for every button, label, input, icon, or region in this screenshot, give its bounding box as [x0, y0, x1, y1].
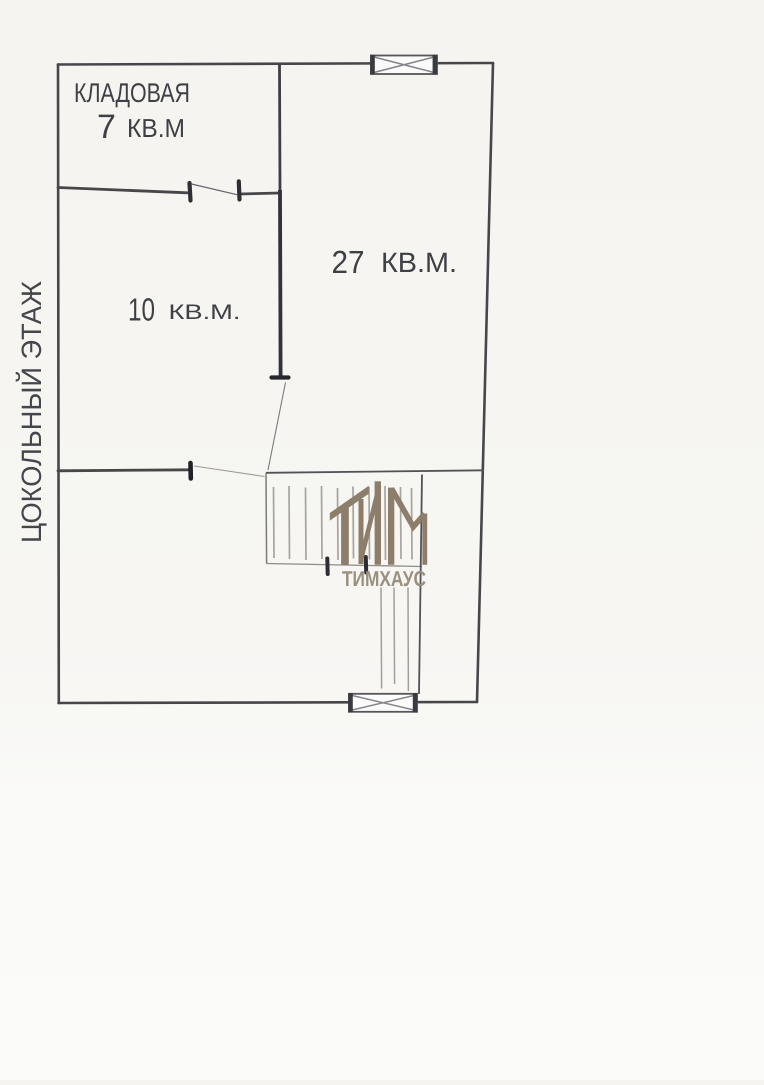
svg-text:КВ.М.: КВ.М. [381, 247, 457, 278]
svg-text:КЛАДОВАЯ: КЛАДОВАЯ [74, 78, 190, 108]
svg-text:ЦОКОЛЬНЫЙ ЭТАЖ: ЦОКОЛЬНЫЙ ЭТАЖ [15, 281, 47, 543]
svg-text:КВ.М: КВ.М [127, 113, 185, 143]
svg-text:27: 27 [332, 244, 365, 280]
svg-text:7: 7 [97, 108, 116, 146]
svg-text:КВ.М.: КВ.М. [169, 301, 241, 324]
svg-text:ТИМХАУС: ТИМХАУС [342, 567, 426, 591]
svg-text:10: 10 [128, 292, 155, 328]
